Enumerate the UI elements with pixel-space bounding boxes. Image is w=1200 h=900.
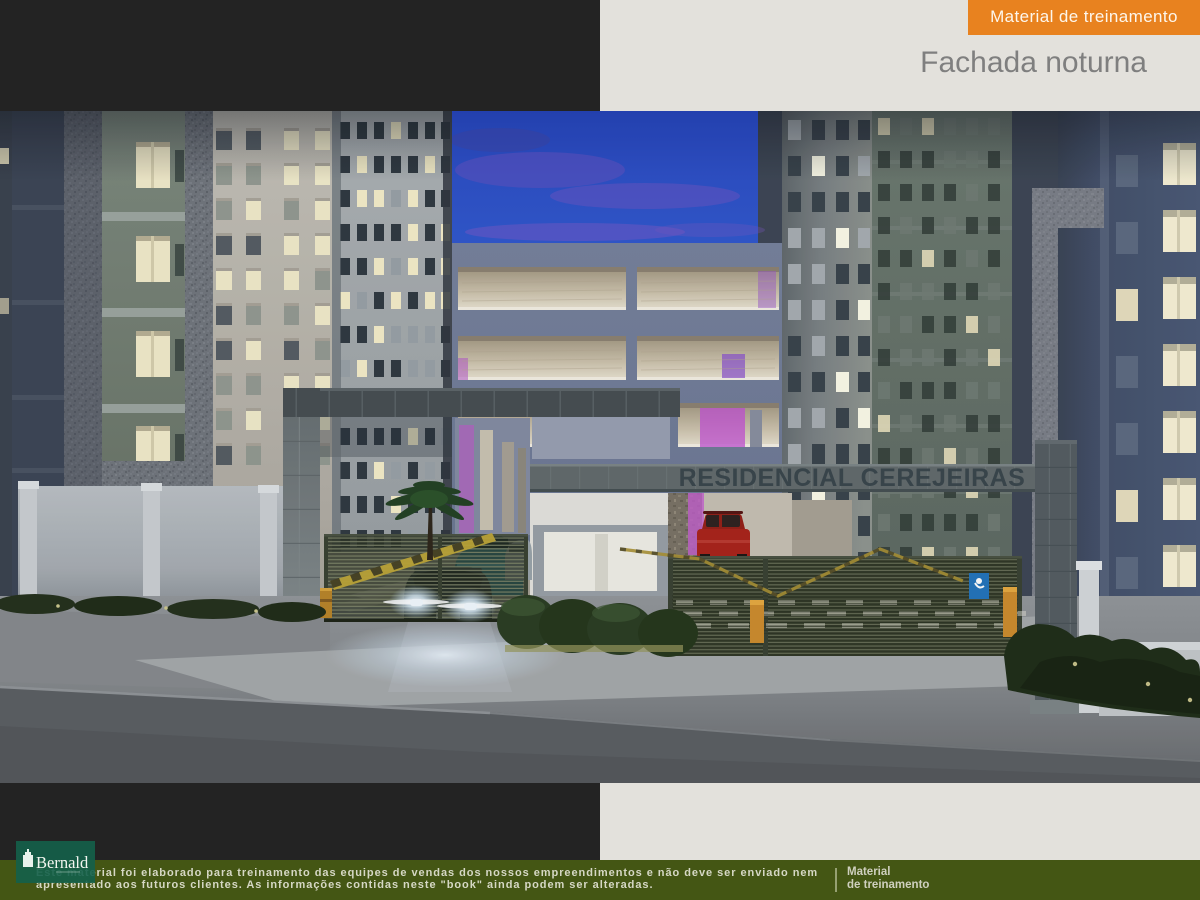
svg-text:Bernald: Bernald: [36, 853, 89, 872]
